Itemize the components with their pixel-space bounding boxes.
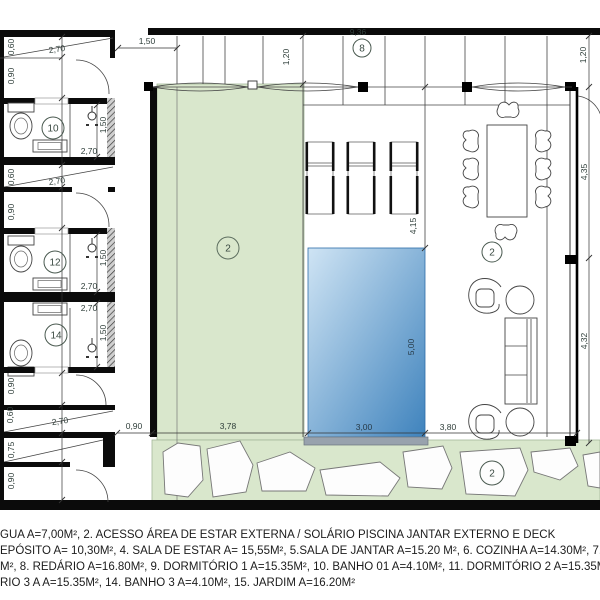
room-number: 2 <box>489 248 495 259</box>
column <box>565 255 576 264</box>
toilet-icon <box>8 103 34 139</box>
dining-chair <box>536 130 551 152</box>
dim-text: 2,70 <box>81 303 98 313</box>
legend: GUA A=7,00M², 2. ACESSO ÁREA DE ESTAR EX… <box>0 527 600 591</box>
dining-chair <box>497 102 519 117</box>
dim-text: 0,60 <box>6 168 16 185</box>
dim-text: 5,00 <box>406 338 416 355</box>
post <box>144 82 153 91</box>
room-number: 2 <box>225 244 231 255</box>
dim-text: 1,20 <box>281 48 291 65</box>
dim-text: 1,20 <box>578 46 588 63</box>
dim-text: 3,80 <box>440 422 457 432</box>
dining-chair <box>463 186 478 208</box>
door-opening <box>35 98 68 104</box>
dim-text: 2,70 <box>81 146 98 156</box>
dim-text: 3,78 <box>220 421 237 431</box>
door-swing-arc <box>76 470 108 502</box>
room-number: 14 <box>50 331 62 342</box>
dim-text: 1,50 <box>98 116 108 133</box>
column <box>565 82 576 91</box>
dim-text: 0,60 <box>5 406 15 423</box>
room-number: 10 <box>47 124 59 135</box>
dim-text: 4,15 <box>408 217 418 234</box>
legend-line: EPÓSITO A= 10,30M², 4. SALA DE ESTAR A= … <box>0 543 600 559</box>
lounge-furniture <box>469 279 537 440</box>
sofa <box>505 318 537 404</box>
dim-text: 3,00 <box>356 422 373 432</box>
dim-text: 0,90 <box>126 421 143 431</box>
dining-chair <box>536 186 551 208</box>
deck-left-wall <box>150 87 157 437</box>
door-swing-arc <box>76 375 106 405</box>
dim-text: 2,70 <box>48 43 66 55</box>
door-swing-arc <box>76 60 109 94</box>
dim-text: 2,70 <box>51 415 69 427</box>
dining-chair <box>536 158 551 180</box>
legend-line: M², 8. REDÁRIO A=16.80M², 9. DORMITÓRIO … <box>0 559 600 575</box>
legend-line: GUA A=7,00M², 2. ACESSO ÁREA DE ESTAR EX… <box>0 527 600 543</box>
column <box>565 436 576 446</box>
bottom-wall <box>0 500 600 510</box>
dim-text: 0,90 <box>6 67 16 84</box>
shower-icon <box>86 338 98 357</box>
post-open <box>248 81 257 89</box>
room-number: 2 <box>489 469 495 480</box>
dim-text: 1,50 <box>139 36 156 46</box>
armchair-icon <box>469 405 501 440</box>
armchair-icon <box>469 279 501 314</box>
lounger-icon <box>347 142 376 214</box>
floor-plan-drawing: 0,60 2,70 0,90 1,50 1,20 9,36 1,20 1,50 … <box>0 0 600 522</box>
post <box>358 82 368 92</box>
hatched-wall <box>107 228 115 298</box>
sun-loungers <box>306 142 419 214</box>
dim-text: 0,90 <box>6 377 16 394</box>
dining-set <box>463 102 551 240</box>
shower-icon <box>86 106 98 125</box>
hatched-wall <box>107 302 115 367</box>
dim-text: 1,50 <box>98 324 108 341</box>
toilet-icon <box>8 236 34 272</box>
right-wall <box>565 82 600 446</box>
dim-text: 0,60 <box>6 38 16 55</box>
side-table <box>506 286 534 314</box>
legend-line: RIO 3 A A=15.35M², 14. BANHO 3 A=4.10M²,… <box>0 575 600 591</box>
post <box>462 82 472 92</box>
dining-chair <box>495 225 517 240</box>
top-wall <box>148 28 600 35</box>
dim-text: 0,90 <box>6 472 16 489</box>
door-opening <box>35 228 68 234</box>
hatched-wall <box>107 98 115 165</box>
deck-strip <box>157 84 304 440</box>
shower-icon <box>86 238 98 257</box>
dim-text: 4,32 <box>579 332 589 349</box>
dining-chair <box>463 130 478 152</box>
pool-coping <box>304 437 428 445</box>
lounger-icon <box>390 142 419 214</box>
dim-text: 0,90 <box>6 203 16 220</box>
dining-table <box>487 125 527 217</box>
dim-text: 4,35 <box>579 163 589 180</box>
dim-text: 9,36 <box>350 27 367 37</box>
lounger-icon <box>306 142 335 214</box>
floor-plan-page: 0,60 2,70 0,90 1,50 1,20 9,36 1,20 1,50 … <box>0 0 600 600</box>
ramp-line <box>4 440 103 462</box>
room-number: 8 <box>359 44 365 55</box>
door-swing-arc <box>76 193 109 227</box>
dim-text: 0,75 <box>6 441 16 458</box>
dining-chair <box>463 158 478 180</box>
room-number: 12 <box>49 258 61 269</box>
dim-text: 1,50 <box>98 249 108 266</box>
stone <box>403 446 452 489</box>
dim-text: 2,70 <box>81 281 98 291</box>
side-table <box>506 408 534 436</box>
